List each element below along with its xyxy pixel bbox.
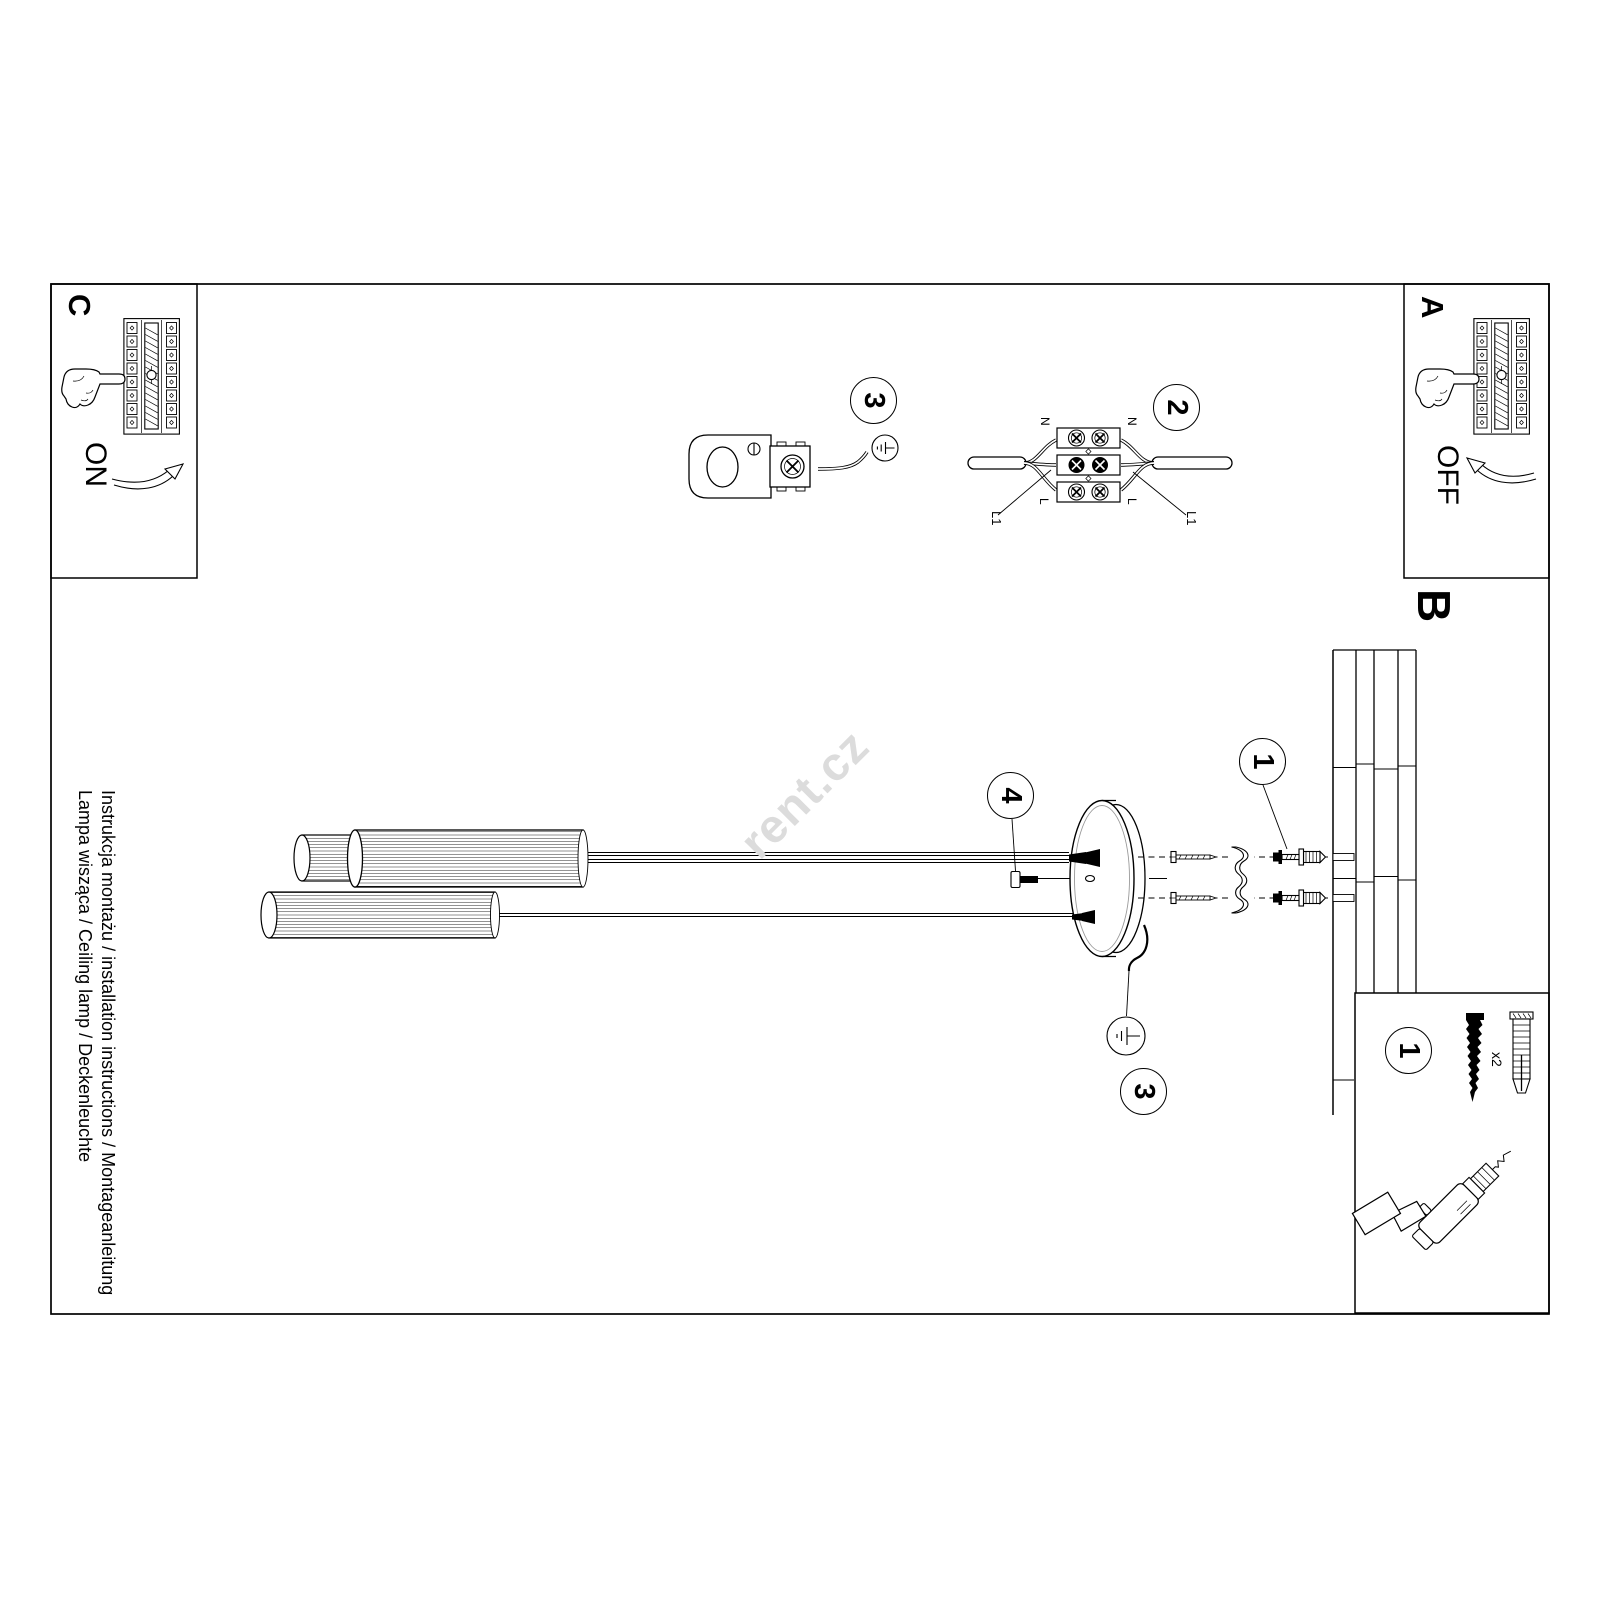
screenshot-canvas: A B C OFF ON 1 1 2 3 3 4 N N L L L1 L1 x… (0, 0, 1600, 1600)
section-c-label: C (64, 294, 95, 316)
ceiling-hole (1333, 854, 1354, 861)
step-circle-4: 4 (987, 772, 1034, 819)
step-circle-2: 2 (1153, 384, 1200, 431)
step-circle-3-lug: 3 (850, 377, 897, 424)
earth-lug (689, 435, 867, 498)
switched-live-label-top: L1 (1185, 511, 1198, 525)
fixing-screw (1011, 872, 1038, 888)
ground-symbol-icon (1107, 1017, 1145, 1055)
step4-leader-line (1012, 819, 1016, 871)
off-label: OFF (1432, 445, 1462, 505)
mains-cable (1152, 457, 1232, 469)
live-label-bottom: L (1038, 498, 1050, 505)
parts-box (1348, 993, 1549, 1313)
mounting-bracket (1232, 847, 1248, 913)
footer-title-line2: Lampa wisząca / Ceiling lamp / Deckenleu… (76, 790, 94, 1162)
section-a-label: A (1417, 296, 1448, 318)
canopy (1011, 801, 1147, 1017)
flip-arrow-icon (1467, 458, 1536, 483)
step-circle-1-kit: 1 (1385, 1027, 1432, 1074)
footer-title-line1: Instrukcja montażu / installation instru… (99, 790, 117, 1295)
lamp-cable (968, 457, 1026, 469)
live-label-top: L (1126, 498, 1138, 505)
terminal-block (968, 428, 1232, 515)
step1-leader-line (1263, 785, 1287, 849)
section-b-label: B (1411, 589, 1457, 622)
ceiling-hole (1333, 895, 1354, 902)
lamp-tubes (261, 830, 588, 938)
neutral-label-bottom: N (1039, 417, 1051, 426)
neutral-label-top: N (1126, 417, 1138, 426)
ground-wire (1129, 925, 1147, 971)
step-circle-3-canopy: 3 (1120, 1068, 1167, 1115)
wall-plug-icon (1510, 1012, 1533, 1093)
ground-symbol-icon (872, 435, 898, 461)
switched-live-label-bottom: L1 (990, 511, 1003, 525)
flip-arrow-icon (112, 464, 183, 489)
screw-quantity-label: x2 (1490, 1052, 1504, 1067)
step-circle-1: 1 (1239, 738, 1286, 785)
section-c-box (51, 284, 197, 578)
section-a-box (1404, 284, 1549, 578)
ground-leader-line (1127, 971, 1130, 1016)
on-label: ON (80, 442, 110, 487)
